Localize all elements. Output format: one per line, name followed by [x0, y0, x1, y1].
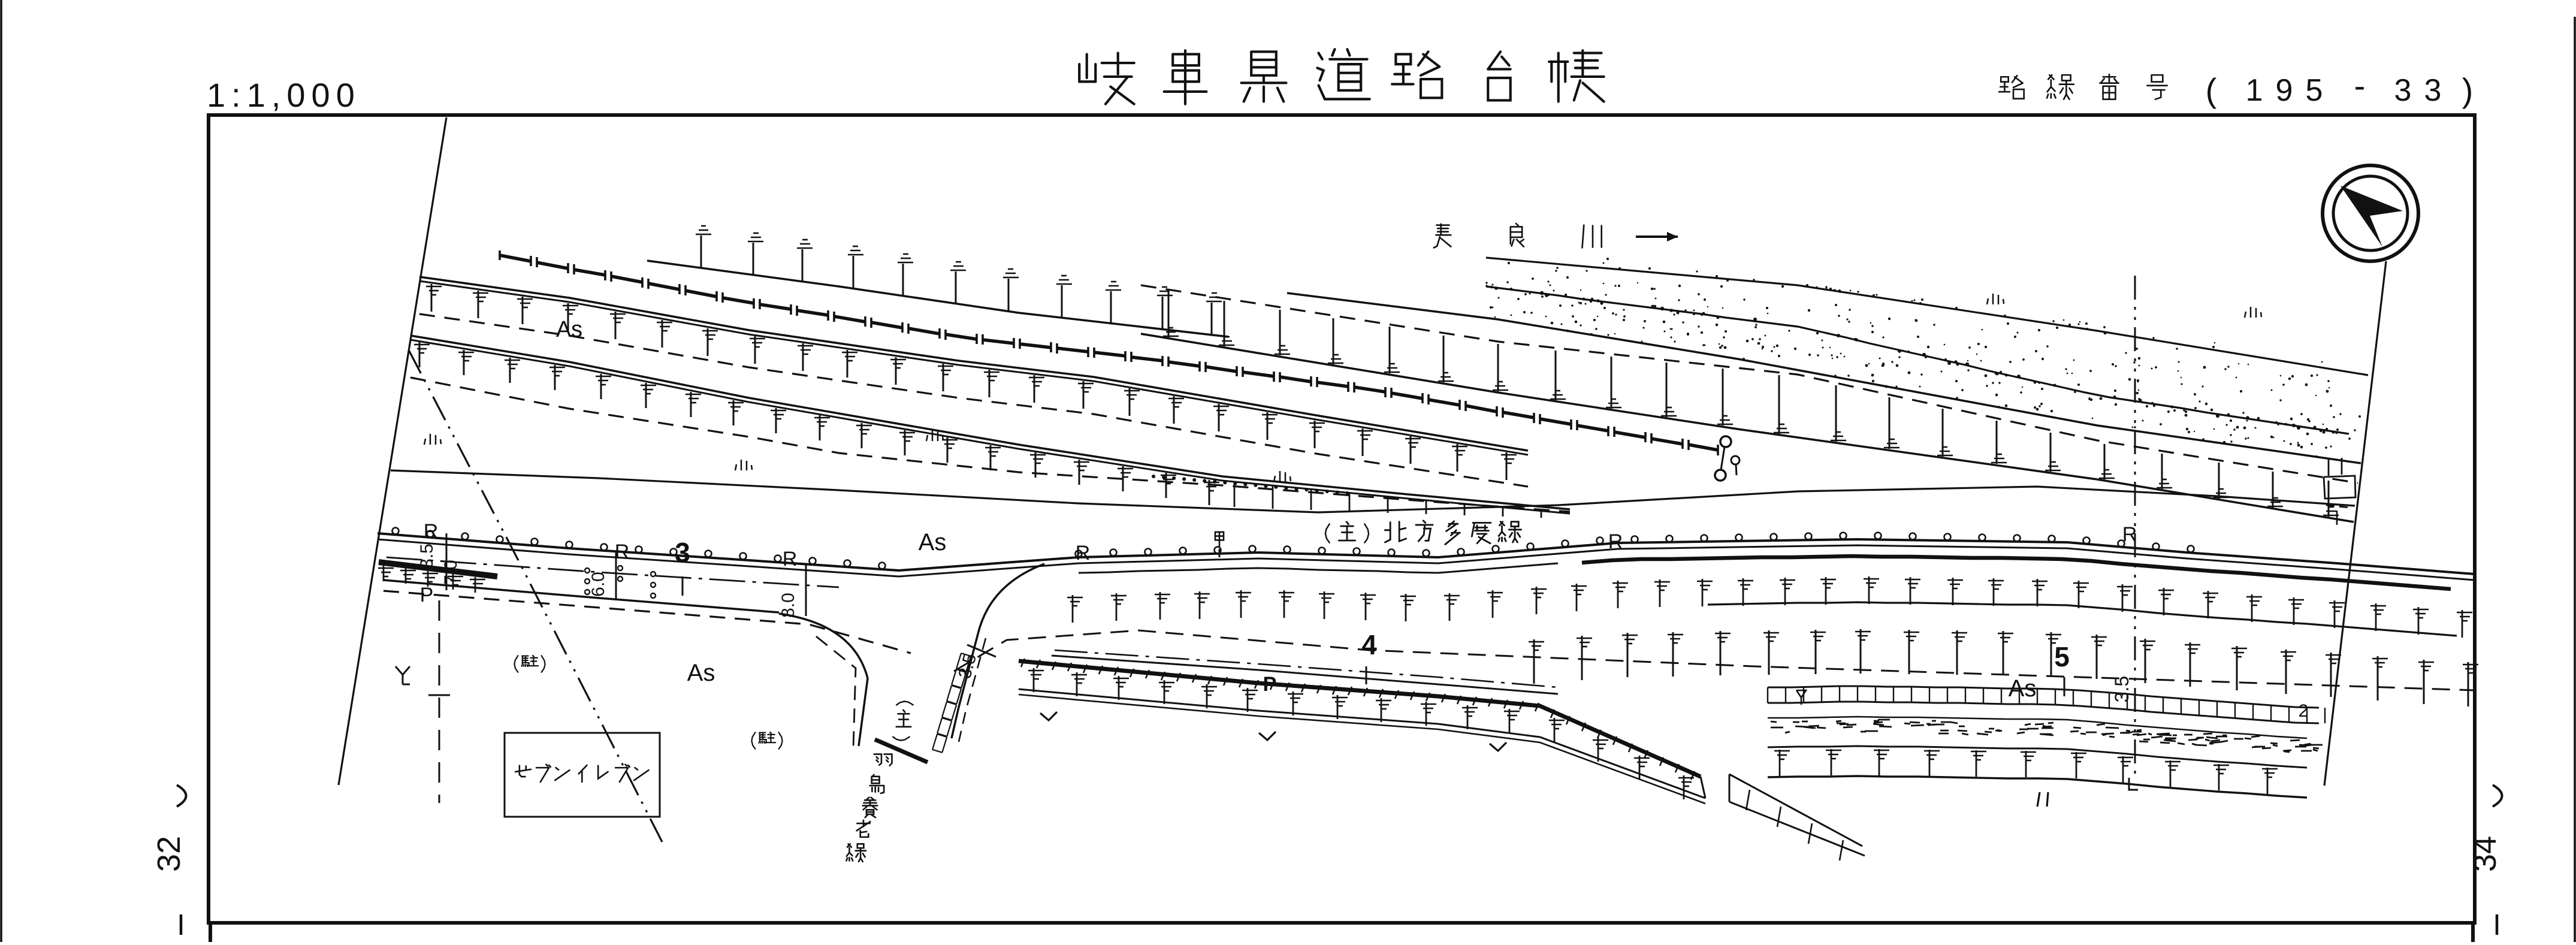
svg-text:32: 32	[151, 836, 187, 872]
svg-text:3.5: 3.5	[2111, 676, 2133, 702]
svg-text:As: As	[556, 317, 582, 342]
svg-text:R: R	[615, 541, 630, 563]
svg-text:): )	[2462, 71, 2474, 109]
svg-text:1: 1	[2246, 73, 2263, 108]
svg-text:9: 9	[2276, 73, 2293, 108]
svg-text:R: R	[1076, 542, 1091, 564]
svg-text:R: R	[424, 520, 439, 543]
svg-text:3: 3	[2394, 73, 2412, 108]
svg-text:(: (	[2206, 71, 2217, 109]
svg-text:P: P	[420, 584, 434, 606]
svg-text:R: R	[783, 548, 798, 570]
svg-text:3: 3	[675, 537, 690, 568]
svg-text:1:1,000: 1:1,000	[207, 76, 361, 114]
svg-text:5: 5	[2306, 73, 2323, 108]
svg-text:34: 34	[2467, 836, 2503, 872]
svg-text:4: 4	[1361, 629, 1377, 660]
svg-text:As: As	[687, 660, 715, 686]
svg-text:5: 5	[2054, 641, 2070, 672]
svg-text:7.0: 7.0	[441, 560, 461, 585]
svg-text:3: 3	[2424, 73, 2442, 108]
svg-text:R: R	[1608, 530, 1623, 553]
svg-text:As: As	[919, 529, 947, 555]
svg-text:P: P	[1263, 673, 1277, 696]
svg-text:2: 2	[2299, 701, 2309, 721]
svg-text:3.5: 3.5	[417, 544, 437, 569]
svg-text:-: -	[2354, 67, 2366, 104]
svg-text:6.0: 6.0	[588, 572, 608, 597]
